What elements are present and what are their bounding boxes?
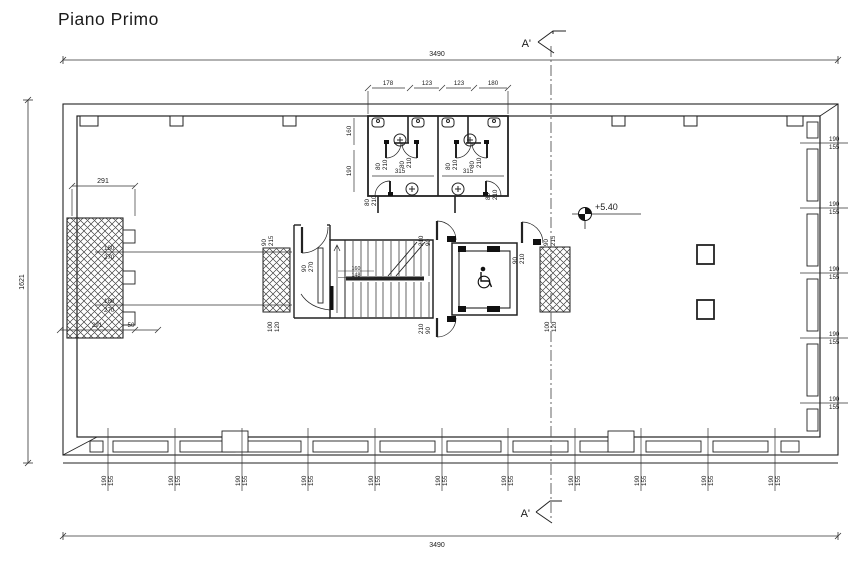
bottom-window-label: 155 bbox=[708, 475, 715, 486]
right-window-label: 155 bbox=[829, 274, 840, 281]
bottom-window-labels: 190 155 190 155 190 155 190 155 190 155 … bbox=[101, 475, 782, 486]
left-block-bottom-dim: 50 bbox=[128, 322, 135, 329]
shaft-dim: 100 bbox=[544, 321, 551, 332]
dim-bottom-overall-line bbox=[60, 532, 841, 540]
right-window-label: 155 bbox=[829, 209, 840, 216]
left-block-bottom-dim: 291 bbox=[92, 322, 103, 329]
stair-dim: 160 bbox=[352, 266, 361, 272]
elevation-label: +5.40 bbox=[595, 202, 618, 212]
plan-title: Piano Primo bbox=[58, 9, 159, 29]
door-dim: 90 bbox=[512, 257, 519, 264]
bathroom-block: 178 123 123 180 160 190 315 315 80 210 8… bbox=[346, 80, 511, 213]
bathroom-dim: 190 bbox=[346, 165, 353, 176]
left-block-top-dim: 291 bbox=[97, 178, 109, 185]
door-dim: 90 bbox=[425, 327, 432, 334]
bottom-window-label: 155 bbox=[775, 475, 782, 486]
door-dim: 210 bbox=[418, 235, 425, 246]
door-dim: 90 bbox=[543, 239, 550, 246]
elevator bbox=[452, 243, 517, 315]
door-dim: 210 bbox=[406, 157, 413, 168]
door-dim: 210 bbox=[418, 323, 425, 334]
section-arrow-top bbox=[538, 31, 566, 53]
section-marker-top: A' bbox=[522, 38, 531, 50]
door-dim: 80 bbox=[364, 199, 371, 206]
floor-plan: Piano Primo 3490 3490 1621 bbox=[0, 0, 856, 563]
bottom-window-label: 190 bbox=[368, 475, 375, 486]
bottom-window-label: 190 bbox=[235, 475, 242, 486]
right-window-label: 155 bbox=[829, 339, 840, 346]
bottom-window-label: 190 bbox=[501, 475, 508, 486]
bottom-window-label: 190 bbox=[168, 475, 175, 486]
door-dim: 80 bbox=[375, 163, 382, 170]
bottom-window-label: 155 bbox=[242, 475, 249, 486]
right-window-sills bbox=[807, 122, 818, 431]
bathroom-dim: 178 bbox=[383, 80, 394, 87]
shaft-dim: 100 bbox=[267, 321, 274, 332]
door-dim: 90 bbox=[301, 265, 308, 272]
right-window-label: 190 bbox=[829, 266, 840, 273]
section-arrow-bottom bbox=[536, 501, 562, 523]
door-dim: 210 bbox=[382, 159, 389, 170]
left-shaft-block: 291 180 270 180 270 291 50 bbox=[57, 178, 292, 338]
door-dim: 210 bbox=[519, 253, 526, 264]
open-door-leaf bbox=[318, 248, 323, 303]
elevation-marker: +5.40 bbox=[572, 202, 641, 229]
bottom-window-label: 190 bbox=[568, 475, 575, 486]
door-dim: 80 bbox=[399, 161, 406, 168]
left-opening-dim: 270 bbox=[104, 307, 115, 314]
right-window-label: 190 bbox=[829, 331, 840, 338]
door-dim: 210 bbox=[476, 157, 483, 168]
drawing-sheet: Piano Primo 3490 3490 1621 bbox=[0, 0, 856, 563]
door-dim: 210 bbox=[371, 195, 378, 206]
right-window-label: 155 bbox=[829, 404, 840, 411]
bottom-window-label: 155 bbox=[442, 475, 449, 486]
right-window-label: 155 bbox=[829, 144, 840, 151]
door-dim: 215 bbox=[268, 235, 275, 246]
bottom-window-label: 190 bbox=[101, 475, 108, 486]
bathroom-dim: 315 bbox=[395, 168, 406, 175]
right-window-label: 190 bbox=[829, 201, 840, 208]
core-right-door bbox=[522, 222, 543, 245]
door-dim: 80 bbox=[445, 163, 452, 170]
bottom-window-label: 155 bbox=[641, 475, 648, 486]
dim-bottom-overall: 3490 bbox=[429, 542, 445, 549]
door-dim: 80 bbox=[485, 193, 492, 200]
bottom-window-label: 155 bbox=[375, 475, 382, 486]
bottom-window-label: 190 bbox=[768, 475, 775, 486]
dim-left-overall: 1621 bbox=[19, 274, 26, 290]
core-left-shaft bbox=[263, 248, 290, 312]
bathroom-dim: 315 bbox=[463, 168, 474, 175]
door-dim: 210 bbox=[492, 189, 499, 200]
shaft-dim: 120 bbox=[551, 321, 558, 332]
column bbox=[697, 300, 714, 319]
core-right-shaft bbox=[540, 247, 570, 312]
bathroom-dim: 123 bbox=[422, 80, 433, 87]
bottom-window-label: 155 bbox=[508, 475, 515, 486]
bottom-window-label: 155 bbox=[108, 475, 115, 486]
bottom-window-label: 190 bbox=[634, 475, 641, 486]
door-dim: 80 bbox=[469, 161, 476, 168]
door-dim: 90 bbox=[261, 239, 268, 246]
shaft-dim: 120 bbox=[274, 321, 281, 332]
bathroom-dim: 123 bbox=[454, 80, 465, 87]
dim-top-overall: 3490 bbox=[429, 51, 445, 58]
right-window-label: 190 bbox=[829, 396, 840, 403]
bottom-window-label: 190 bbox=[301, 475, 308, 486]
column bbox=[697, 245, 714, 264]
section-marker-bottom: A' bbox=[521, 508, 530, 520]
bathroom-dim: 160 bbox=[346, 125, 353, 136]
bottom-window-label: 190 bbox=[435, 475, 442, 486]
right-window-label: 190 bbox=[829, 136, 840, 143]
columns bbox=[697, 245, 714, 319]
left-opening-dim: 270 bbox=[104, 254, 115, 261]
left-opening-dim: 180 bbox=[104, 245, 115, 252]
stair-door-leaf bbox=[330, 286, 334, 310]
stair-core: 160 148 bbox=[261, 221, 570, 337]
bottom-window-sills bbox=[90, 431, 799, 452]
dim-top-overall-line bbox=[60, 56, 841, 64]
left-opening-dim: 180 bbox=[104, 298, 115, 305]
door-dim: 90 bbox=[425, 239, 432, 246]
stair-dim: 148 bbox=[352, 273, 361, 279]
bottom-window-label: 190 bbox=[701, 475, 708, 486]
bottom-window-label: 155 bbox=[175, 475, 182, 486]
door-dim: 210 bbox=[452, 159, 459, 170]
bottom-window-label: 155 bbox=[308, 475, 315, 486]
bottom-window-label: 155 bbox=[575, 475, 582, 486]
bathroom-dim: 180 bbox=[488, 80, 499, 87]
door-dim: 270 bbox=[308, 261, 315, 272]
